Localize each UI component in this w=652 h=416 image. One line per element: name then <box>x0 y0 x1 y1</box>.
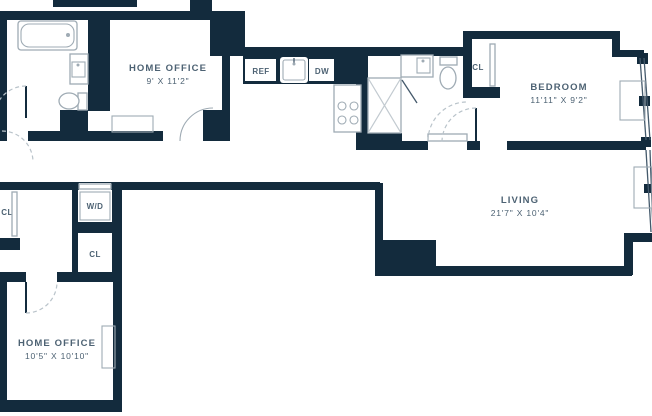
room-label: LIVING <box>501 195 539 206</box>
washer-dryer-icon: W/D <box>80 192 110 220</box>
bedroom-closet-label: CL <box>472 63 483 72</box>
washer-dryer-label: W/D <box>87 202 104 211</box>
floor-plan-canvas: HOME OFFICE 9' X 11'2" REF DW <box>0 0 652 416</box>
living-room: LIVING 21'7" X 10'4" <box>491 167 652 218</box>
bathroom-sink-icon <box>70 54 88 84</box>
floor-plan: HOME OFFICE 9' X 11'2" REF DW <box>0 0 652 416</box>
left-closet-slider <box>12 192 17 236</box>
refrigerator-label: REF <box>252 67 269 76</box>
second-bathroom-sink-icon <box>401 55 433 77</box>
wd-slider <box>79 184 111 189</box>
second-toilet-icon <box>440 57 457 89</box>
desk <box>112 116 153 132</box>
office2-door-swing <box>26 282 57 313</box>
bathroom-second <box>368 55 467 141</box>
home-office-1: HOME OFFICE 9' X 11'2" <box>112 63 213 141</box>
left-closet-label: CL <box>1 208 12 217</box>
kitchen-sink-icon <box>280 57 308 83</box>
stove-icon <box>334 85 361 132</box>
closet-slider <box>490 44 495 86</box>
bathroom2-door-leaf <box>428 134 467 141</box>
room-label: HOME OFFICE <box>18 338 96 349</box>
home-office-2: HOME OFFICE 10'5" X 10'10" <box>18 282 115 368</box>
room-label: BEDROOM <box>530 82 587 93</box>
bathtub-icon <box>18 21 77 50</box>
bathroom-main <box>0 21 88 118</box>
room-label: HOME OFFICE <box>129 63 207 74</box>
room-dims: 21'7" X 10'4" <box>491 208 549 218</box>
room-dims: 10'5" X 10'10" <box>25 351 89 361</box>
room-dims: 11'11" X 9'2" <box>530 95 587 105</box>
room-dims: 9' X 11'2" <box>147 76 190 86</box>
hall-closet-label: CL <box>89 250 100 259</box>
toilet-icon <box>59 93 87 110</box>
shower-icon <box>368 78 401 133</box>
dishwasher-label: DW <box>315 67 329 76</box>
shower-door <box>402 80 417 103</box>
